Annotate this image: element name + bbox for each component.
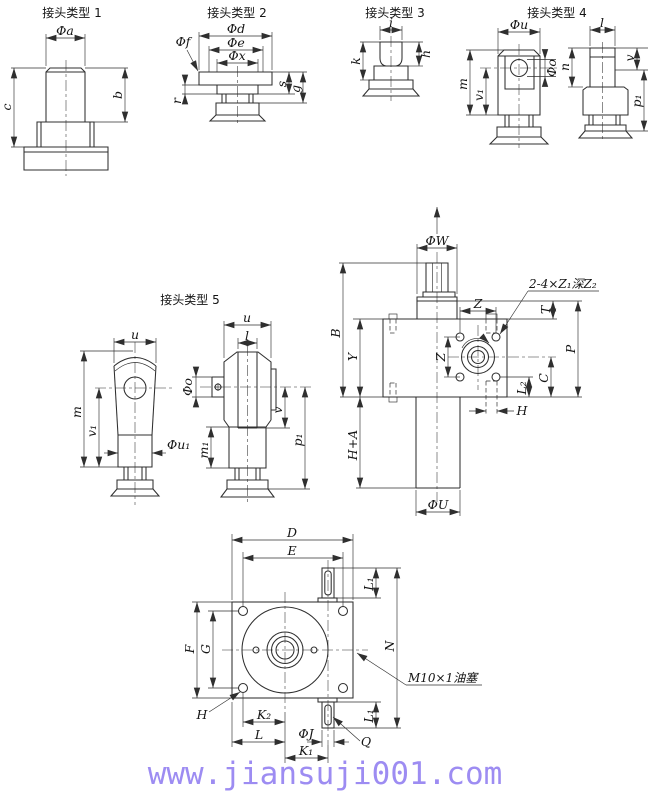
joint2-dimensions: Φd Φe Φx Φf r s g	[169, 21, 307, 104]
bottom-outline	[222, 560, 368, 745]
dim-label-z-top: Z	[473, 296, 483, 311]
dim-label-m: m	[455, 78, 470, 90]
dim-label-z-side: Z	[433, 352, 448, 362]
dim-label-p: P	[563, 344, 578, 354]
joint1-dimensions: Φa c b	[0, 23, 128, 147]
cover-screw-tip	[389, 314, 397, 319]
joint-type-4-view: 接头类型 4 Φu m v₁ Φo	[455, 5, 648, 148]
bottom-flange-view: D E L₁ N F G H K₂ L	[182, 525, 482, 763]
main-outline	[340, 207, 582, 502]
dim-label-l2b: L₂	[514, 381, 529, 395]
technical-drawing-page: 接头类型 1 Φa c b 接头类型 2	[0, 0, 650, 795]
dim-label-v: v	[622, 54, 637, 61]
joint-type-2-view: 接头类型 2 Φd Φe Φx Φf r	[169, 5, 307, 126]
dim-label-phi-u2: ΦU	[428, 497, 449, 512]
dim-label-phi-a: Φa	[56, 23, 74, 38]
bottom-dimensions: D E L₁ N F G H K₂ L	[182, 525, 482, 763]
joint-type-5-view: 接头类型 5 u m v₁ Φu₁	[69, 292, 312, 505]
joint1-title: 接头类型 1	[42, 5, 101, 20]
joint3-outline	[363, 36, 419, 101]
dim-label-u: u	[131, 327, 139, 342]
dim-label-k: k	[348, 57, 363, 65]
dim-label-phi-w: ΦW	[425, 233, 449, 248]
dim-label-phi-d: Φd	[227, 21, 245, 36]
dim-label-c2: C	[536, 373, 551, 383]
joint3-title: 接头类型 3	[365, 5, 424, 20]
main-gearbox-view: ΦW 2-4×Z₁深Z₂ Z Z T P C L₂ H	[328, 207, 599, 516]
dim-label-t: T	[538, 304, 553, 314]
dim-label-p1: p₁	[629, 94, 644, 107]
dim-label-phi-x: Φx	[228, 48, 245, 63]
dim-label-g2: G	[198, 644, 213, 654]
dim-label-phi-j: ΦJ	[298, 726, 314, 741]
dim-label-h3: H	[196, 707, 209, 722]
joint5-front-dimensions: u m v₁ Φu₁	[69, 327, 190, 467]
dim-label-b: b	[110, 91, 125, 99]
dim-label-phi-o2: Φo	[180, 378, 195, 396]
dim-label-h-plus-a: H+A	[345, 430, 360, 461]
joint2-outline	[199, 66, 272, 126]
joint5-title: 接头类型 5	[160, 292, 219, 307]
dim-label-phi-u: Φu	[510, 17, 528, 32]
thread-holes-note: 2-4×Z₁深Z₂	[528, 277, 597, 291]
dim-label-y: Y	[345, 351, 360, 361]
dim-label-v1: v₁	[84, 425, 99, 437]
dim-label-n2: N	[382, 639, 397, 652]
dim-label-l2: l	[245, 328, 249, 343]
joint2-title: 接头类型 2	[207, 5, 266, 20]
joint5-side-outline	[200, 345, 312, 505]
dim-label-s: s	[274, 81, 289, 87]
drawing-canvas: 接头类型 1 Φa c b 接头类型 2	[0, 0, 650, 795]
joint5-side-dimensions: u l Φo m₁ v p₁	[180, 310, 310, 489]
dim-label-v1: v₁	[471, 89, 486, 101]
watermark-text: www.jiansuji001.com	[148, 756, 503, 792]
dim-label-p1b: p₁	[290, 433, 305, 446]
cover-screw-tip	[486, 314, 497, 319]
dim-label-c: c	[0, 103, 14, 110]
dim-label-l1-bottom: L₁	[361, 709, 376, 723]
joint5-front-outline	[95, 342, 175, 505]
dim-label-r: r	[169, 97, 184, 104]
dim-label-f: F	[182, 643, 197, 654]
dim-label-m1: m₁	[196, 442, 211, 459]
dim-label-l: l	[600, 15, 604, 30]
cover-screw-tip	[389, 397, 397, 402]
dim-label-b2: B	[328, 328, 343, 338]
joint1-outline	[24, 60, 108, 176]
dim-label-l3: L	[254, 727, 263, 742]
dim-label-h2: H	[516, 403, 529, 418]
dim-label-v2: v	[270, 406, 285, 413]
joint-type-1-view: 接头类型 1 Φa c b	[0, 5, 128, 176]
dim-label-l1-top: L₁	[361, 577, 376, 591]
dim-label-m: m	[69, 406, 84, 418]
dim-label-i: i	[389, 15, 393, 30]
dim-label-phi-u1: Φu₁	[167, 437, 190, 452]
dim-label-k2: K₂	[256, 707, 271, 722]
dim-label-q: Q	[361, 734, 371, 749]
joint4-title: 接头类型 4	[527, 5, 586, 20]
oil-plug-note: M10×1油塞	[407, 671, 479, 685]
dim-label-phi-f: Φf	[176, 34, 193, 49]
joint4-front-dimensions: Φu m v₁ Φo	[455, 17, 559, 115]
dim-label-u2: u	[243, 310, 251, 325]
dim-label-g: g	[288, 85, 303, 93]
dim-label-e: E	[286, 543, 296, 558]
joint-type-3-view: 接头类型 3 i k h	[348, 5, 433, 101]
dim-label-d: D	[286, 525, 297, 540]
joint3-dimensions: i k h	[348, 15, 433, 80]
dim-label-n: n	[557, 63, 572, 71]
dim-label-h: h	[418, 50, 433, 58]
